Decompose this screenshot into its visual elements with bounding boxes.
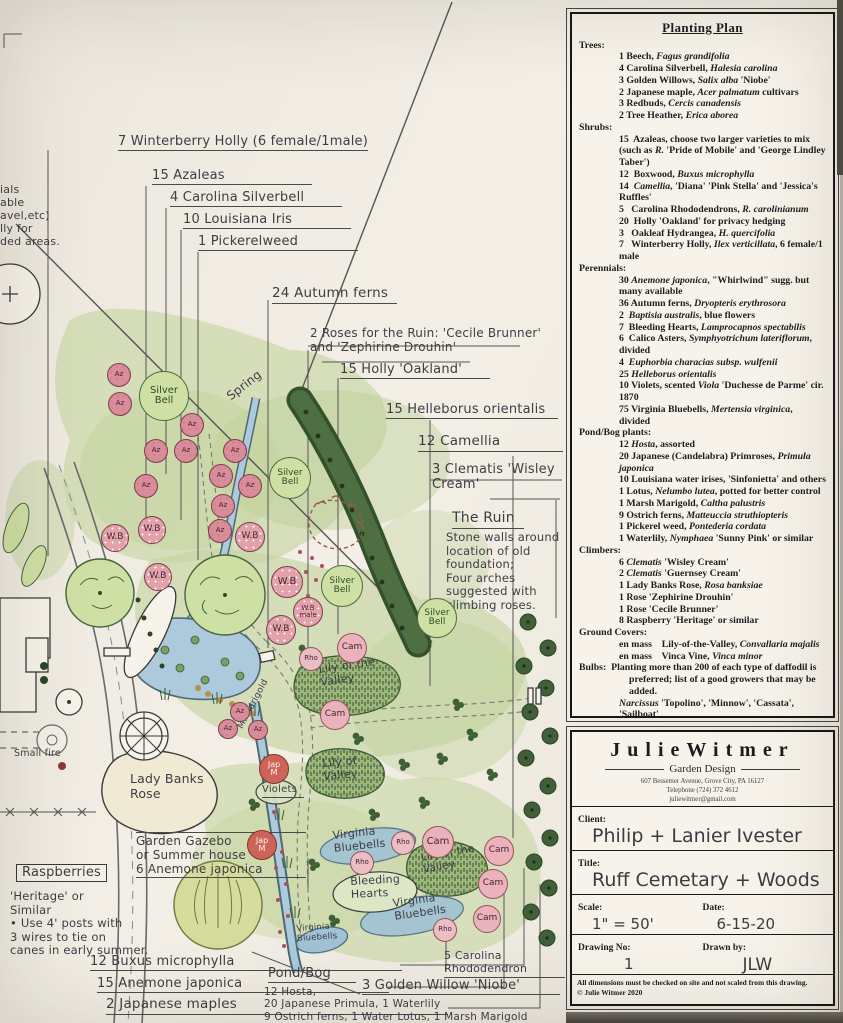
- plant-item: 1 Waterlily, Nymphaea 'Sunny Pink' or si…: [579, 533, 826, 545]
- section-title: Shrubs:: [579, 122, 612, 133]
- plant-item: 2 Baptisia australis, blue flowers: [579, 310, 826, 322]
- winterberry-symbol: W.B: [235, 522, 265, 552]
- azalea-symbol: Az: [230, 702, 250, 722]
- photo-edge-dark: [837, 0, 843, 175]
- plant-item: 1 Rose 'Cecile Brunner': [579, 604, 826, 616]
- section-heading: Bulbs: Planting more than 200 of each ty…: [579, 662, 826, 697]
- ruin-note: Stone walls around location of old found…: [446, 531, 559, 612]
- plant-item: 20 Holly 'Oakland' for privacy hedging: [579, 216, 826, 228]
- winterberry-symbol: W.B: [144, 563, 172, 591]
- drawn-by-label: Drawn by:: [703, 943, 747, 953]
- section-note: Planting more than 200 of each type of d…: [606, 662, 819, 697]
- plant-item: 6 Clematis 'Wisley Cream': [579, 557, 826, 569]
- callout-louisiana-iris: 10 Louisiana Iris: [183, 212, 351, 229]
- pond-bog-heading: Pond/Bog: [268, 966, 356, 983]
- scale-date-row: Scale: 1" = 50' Date: 6-15-20: [572, 894, 833, 934]
- callout-autumn-ferns: 24 Autumn ferns: [272, 286, 397, 304]
- section-title: Bulbs:: [579, 662, 606, 673]
- client-name: Philip + Lanier Ivester: [592, 825, 827, 847]
- japanese-maple-symbol: Jap M: [259, 754, 289, 784]
- plant-item: 9 Ostrich ferns, Matteuccia struthiopter…: [579, 510, 826, 522]
- raspberries-heading: Raspberries: [16, 864, 107, 882]
- drawn-by-cell: Drawn by: JLW: [703, 937, 828, 974]
- section-title: Perennials:: [579, 263, 626, 274]
- fence-line: [0, 808, 96, 816]
- client-row: Client: Philip + Lanier Ivester: [572, 806, 833, 850]
- azalea-symbol: Az: [209, 464, 233, 488]
- title-row: Title: Ruff Cemetary + Woods: [572, 850, 833, 894]
- winterberry-symbol: W.B: [101, 524, 129, 552]
- silverbell-symbol: Silver Bell: [269, 457, 311, 499]
- small-fire-label: Small fire: [14, 748, 61, 759]
- plant-item: 3 Redbuds, Cercis canadensis: [579, 98, 826, 110]
- callout-carolina-silverbell: 4 Carolina Silverbell: [170, 190, 342, 207]
- plant-item: 1 Lady Banks Rose, Rosa banksiae: [579, 580, 826, 592]
- callout-pickerelweed: 1 Pickerelweed: [198, 234, 358, 251]
- rhododendron-symbol: Rho: [433, 918, 457, 942]
- camellia-symbol: Cam: [337, 633, 367, 663]
- plant-item: 30 Anemone japonica, "Whirlwind" sugg. b…: [579, 275, 826, 299]
- azalea-symbol: Az: [144, 439, 168, 463]
- camellia-symbol: Cam: [473, 905, 501, 933]
- drawing-no-cell: Drawing No: 1: [578, 937, 703, 974]
- raspberries-note: 'Heritage' or Similar • Use 4' posts wit…: [10, 890, 149, 958]
- plant-item: 2 Japanese maple, Acer palmatum cultivar…: [579, 87, 826, 99]
- client-label: Client:: [578, 815, 606, 825]
- firm-address: 607 Bessemer Avenue, Grove City, PA 1612…: [572, 778, 833, 804]
- plant-item: 1 Rose 'Zephirine Drouhin': [579, 592, 826, 604]
- section-heading: Shrubs:: [579, 122, 826, 134]
- azalea-symbol: Az: [248, 720, 268, 740]
- plant-item: 12 Hosta, assorted: [579, 439, 826, 451]
- phone-line: Telephone (724) 372 4612: [572, 787, 833, 796]
- plant-item: 20 Japanese (Candelabra) Primroses, Prim…: [579, 451, 826, 475]
- garden-plan-drawing: 7 Winterberry Holly (6 female/1male)15 A…: [0, 0, 565, 1023]
- drawn-by-value: JLW: [743, 955, 828, 975]
- ruin-heading: The Ruin: [452, 510, 524, 529]
- gazebo-note: Garden Gazebo or Summer house 6 Anemone …: [136, 832, 306, 878]
- plant-item: 3 Golden Willows, Salix alba 'Niobe': [579, 75, 826, 87]
- plant-item: 4 Carolina Silverbell, Halesia carolina: [579, 63, 826, 75]
- drawing-info-row: Drawing No: 1 Drawn by: JLW: [572, 934, 833, 974]
- drawing-no-label: Drawing No:: [578, 943, 631, 953]
- plant-item: 10 Violets, scented Viola 'Duchesse de P…: [579, 380, 826, 404]
- callout-azaleas: 15 Azaleas: [152, 168, 312, 185]
- camellia-symbol: Cam: [320, 700, 350, 730]
- planting-plan-title: Planting Plan: [579, 20, 826, 36]
- plant-item: 6 Calico Asters, Symphyotrichum laterifl…: [579, 333, 826, 357]
- scale-label: Scale:: [578, 903, 602, 913]
- plant-item: 5 Carolina Rhododendrons, R. carolinianu…: [579, 204, 826, 216]
- scale-cell: Scale: 1" = 50': [578, 897, 703, 934]
- plant-item: 1 Beech, Fagus grandifolia: [579, 51, 826, 63]
- azalea-symbol: Az: [174, 439, 198, 463]
- lily-valley-label-2: Lily of Valley: [322, 755, 358, 784]
- azalea-symbol: Az: [223, 439, 247, 463]
- winterberry-symbol: W.B: [271, 566, 303, 598]
- plant-item: 75 Virginia Bluebells, Mertensia virgini…: [579, 404, 826, 428]
- plant-item: 15 Azaleas, choose two larger varieties …: [579, 134, 826, 169]
- azalea-symbol: Az: [108, 392, 132, 416]
- photo-edge-bottom: [566, 1012, 843, 1023]
- section-title: Ground Covers:: [579, 627, 647, 638]
- azalea-symbol: Az: [134, 474, 158, 498]
- callout-holly-oakland: 15 Holly 'Oakland': [340, 362, 490, 379]
- callout-camellia: 12 Camellia: [418, 434, 563, 452]
- plant-item: 1 Lotus, Nelumbo lutea, potted for bette…: [579, 486, 826, 498]
- plant-item: 36 Autumn ferns, Dryopteris erythrosora: [579, 298, 826, 310]
- rhododendron-symbol: Rho: [299, 647, 323, 671]
- azalea-symbol: Az: [238, 474, 262, 498]
- planting-plan-panel: Planting Plan Trees:1 Beech, Fagus grand…: [570, 12, 835, 718]
- callout-clematis: 3 Clematis 'Wisley Cream': [432, 462, 555, 493]
- firm-name: JulieWitmer: [572, 739, 833, 762]
- plant-item: 12 Boxwood, Buxus microphylla: [579, 169, 826, 181]
- scale-value: 1" = 50': [592, 915, 703, 933]
- callout-winterberry-holly: 7 Winterberry Holly (6 female/1male): [118, 134, 368, 151]
- plant-item: 7 Winterberry Holly, Ilex verticillata, …: [579, 239, 826, 263]
- section-heading: Climbers:: [579, 545, 826, 557]
- silverbell-symbol: Silver Bell: [139, 371, 189, 421]
- drawing-no-value: 1: [624, 955, 703, 973]
- title-block: JulieWitmer Garden Design 607 Bessemer A…: [570, 730, 835, 1006]
- rhododendron-symbol: Rho: [350, 851, 374, 875]
- planting-plan-list: Trees:1 Beech, Fagus grandifolia4 Caroli…: [579, 40, 826, 718]
- azalea-symbol: Az: [218, 719, 238, 739]
- photographed-plan-sheet: 7 Winterberry Holly (6 female/1male)15 A…: [0, 0, 843, 1023]
- plant-item: 1 Marsh Marigold, Caltha palustris: [579, 498, 826, 510]
- plant-item: en mass Vinca Vine, Vinca minor: [579, 651, 826, 663]
- azalea-symbol: Az: [180, 413, 204, 437]
- address-line: 607 Bessemer Avenue, Grove City, PA 1612…: [572, 778, 833, 787]
- date-value: 6-15-20: [717, 915, 828, 933]
- callout-golden-willow: 3 Golden Willow 'Niobe': [362, 978, 560, 995]
- winterberry-male-symbol: W.B male: [293, 597, 323, 627]
- plant-item: 1 Pickerel weed, Pontederia cordata: [579, 521, 826, 533]
- azalea-symbol: Az: [211, 494, 235, 518]
- azalea-symbol: Az: [107, 363, 131, 387]
- plant-item: 10 Louisiana water irises, 'Sinfonietta'…: [579, 474, 826, 486]
- silverbell-symbol: Silver Bell: [417, 598, 457, 638]
- camellia-symbol: Cam: [484, 836, 514, 866]
- japanese-maple-symbol: Jap M: [247, 830, 277, 860]
- date-cell: Date: 6-15-20: [703, 897, 828, 934]
- plant-item: 3 Oakleaf Hydrangea, H. quercifolia: [579, 228, 826, 240]
- section-title: Climbers:: [579, 545, 621, 556]
- firm-header: JulieWitmer Garden Design 607 Bessemer A…: [572, 732, 833, 806]
- plant-item: 7 Bleeding Hearts, Lamprocapnos spectabi…: [579, 322, 826, 334]
- plant-item: 2 Clematis 'Guernsey Cream': [579, 568, 826, 580]
- disclaimer-text: All dimensions must be checked on site a…: [577, 978, 828, 988]
- copyright-text: © Julie Witmer 2020: [577, 988, 828, 998]
- section-heading: Perennials:: [579, 263, 826, 275]
- title-label: Title:: [578, 859, 600, 869]
- rhododendron-symbol: Rho: [391, 831, 415, 855]
- plant-item: 4 Euphorbia characias subsp. wulfenii: [579, 357, 826, 369]
- title-block-footer: All dimensions must be checked on site a…: [572, 974, 833, 1004]
- plant-item: en mass Lily-of-the-Valley, Convallaria …: [579, 639, 826, 651]
- date-label: Date:: [703, 903, 725, 913]
- silverbell-symbol: Silver Bell: [321, 565, 363, 607]
- camellia-symbol: Cam: [422, 826, 454, 858]
- section-heading: Ground Covers:: [579, 627, 826, 639]
- plant-item: 8 Raspberry 'Heritage' or similar: [579, 615, 826, 627]
- section-title: Trees:: [579, 40, 605, 51]
- winterberry-symbol: W.B: [138, 516, 166, 544]
- virginia-bluebells-label-3: Virginia Bluebells: [296, 921, 338, 944]
- plant-item: 2 Tree Heather, Erica aborea: [579, 110, 826, 122]
- plant-item: Narcissus 'Topolino', 'Minnow', 'Cassata…: [579, 698, 826, 718]
- plant-item: 14 Camellia, 'Diana' 'Pink Stella' and '…: [579, 181, 826, 205]
- lady-banks-label: Lady Banks Rose: [130, 772, 204, 802]
- callout-helleborus: 15 Helleborus orientalis: [386, 402, 558, 419]
- violets-label: Violets: [262, 784, 304, 798]
- winterberry-symbol: W.B: [266, 615, 296, 645]
- section-heading: Pond/Bog plants:: [579, 427, 826, 439]
- callout-roses-ruin: 2 Roses for the Ruin: 'Cecile Brunner' a…: [310, 326, 541, 354]
- camellia-symbol: Cam: [478, 869, 508, 899]
- email-line: juliewitmer@gmail.com: [572, 796, 833, 805]
- section-title: Pond/Bog plants:: [579, 427, 651, 438]
- drawing-title: Ruff Cemetary + Woods: [592, 869, 827, 891]
- firm-tagline: Garden Design: [600, 763, 805, 775]
- section-heading: Trees:: [579, 40, 826, 52]
- edge-note: ials able avel,etc) lly for ded areas.: [0, 184, 60, 249]
- azalea-symbol: Az: [208, 519, 232, 543]
- callout-carolina-rhododendron: 5 Carolina Rhododendron: [444, 950, 565, 978]
- plant-item: 25 Helleborus orientalis: [579, 369, 826, 381]
